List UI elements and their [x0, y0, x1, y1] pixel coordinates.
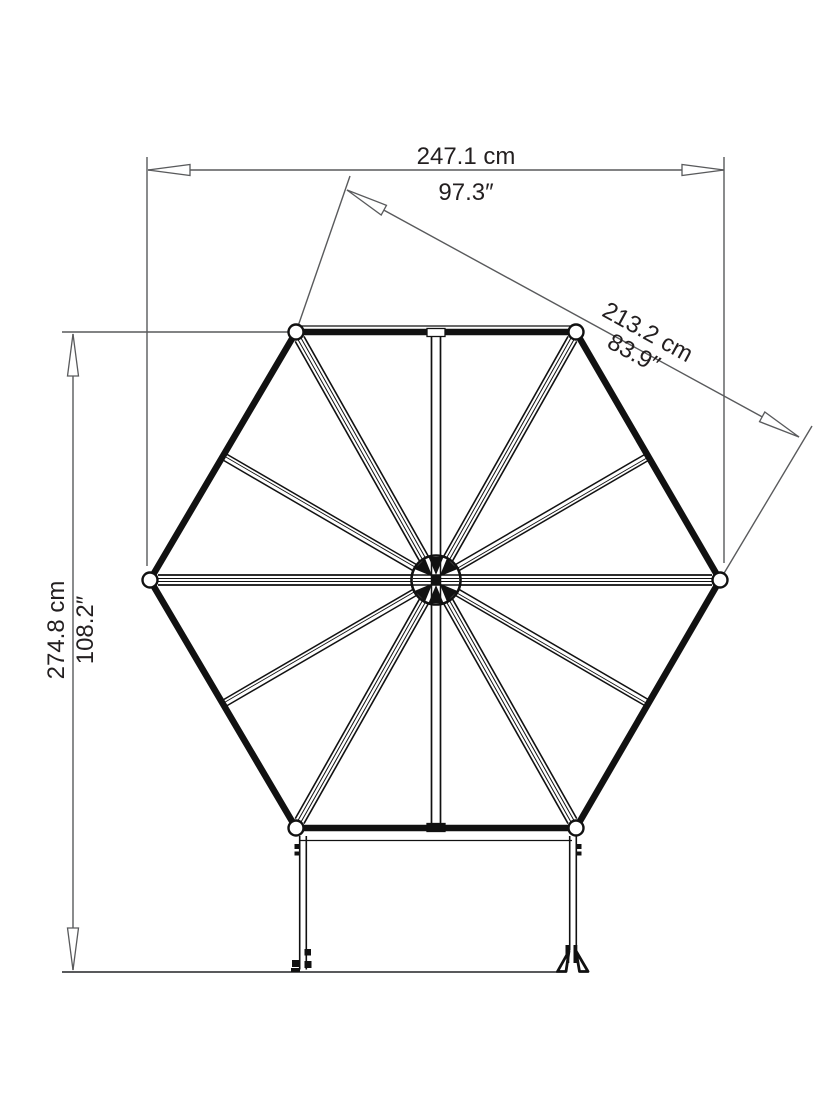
door-posts: [291, 836, 588, 972]
diagonal-extension-bottom: [720, 426, 812, 580]
mid-rafter-upper-left: [223, 454, 418, 572]
rafter-top-right: [441, 336, 576, 565]
rafter-bottom-left: [295, 595, 430, 824]
height-label-cm: 274.8 cm: [43, 581, 70, 680]
mid-rafter-upper-right: [453, 454, 648, 572]
vertex-cap-right: [713, 573, 728, 588]
diagram-canvas: 247.1 cm 97.3″ 213.2 cm 83.9″ 274.8 cm 1…: [0, 0, 840, 1120]
vertex-cap-bottom-right: [569, 821, 584, 836]
arrowhead-left: [148, 165, 190, 176]
vertex-cap-top-right: [569, 325, 584, 340]
hub-center-block: [432, 576, 441, 585]
vertex-cap-top-left: [289, 325, 304, 340]
greenhouse-top-view-diagram: 247.1 cm 97.3″ 213.2 cm 83.9″ 274.8 cm 1…: [0, 0, 840, 1120]
rafter-bottom-right: [441, 595, 576, 824]
door-post-right: [558, 836, 589, 972]
edge-upper-left: [150, 332, 296, 580]
edge-lower-right: [576, 580, 720, 828]
width-label-cm: 247.1 cm: [417, 143, 516, 170]
bracket-top: [427, 329, 445, 337]
dimension-height: 274.8 cm 108.2″: [43, 332, 290, 970]
dimension-diagonal: 213.2 cm 83.9″: [296, 176, 812, 580]
height-label-in: 108.2″: [72, 595, 99, 664]
anchor-foot-left: [291, 949, 312, 972]
post-bolt: [577, 852, 582, 856]
diagonal-extension-top: [296, 176, 350, 332]
arrowhead-diagonal-top: [344, 185, 386, 215]
arrowhead-up: [68, 334, 79, 376]
vertex-cap-bottom-left: [289, 821, 304, 836]
arrowhead-right: [682, 165, 724, 176]
post-bolt: [577, 844, 582, 849]
rafter-top-left: [295, 336, 430, 565]
mid-rafter-lower-left: [223, 588, 418, 706]
door-post-left: [291, 836, 312, 972]
diagonal-dimension-line: [347, 190, 799, 437]
edge-lower-left: [150, 580, 296, 828]
center-hub: [412, 556, 461, 605]
arrowhead-diagonal-bottom: [760, 412, 802, 442]
arrowhead-down: [68, 928, 79, 970]
post-bolt: [295, 852, 300, 856]
width-label-in: 97.3″: [438, 179, 494, 206]
bracket-bottom: [427, 824, 445, 832]
mid-rafter-lower-right: [453, 588, 648, 706]
post-bolt: [295, 844, 300, 849]
vertex-cap-left: [143, 573, 158, 588]
anchor-foot-right: [558, 945, 589, 972]
